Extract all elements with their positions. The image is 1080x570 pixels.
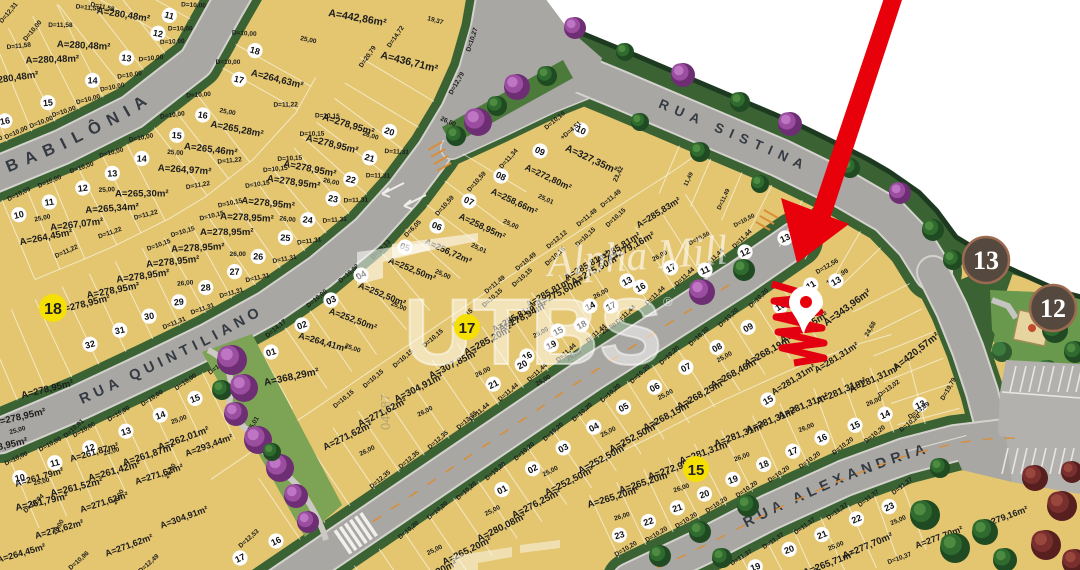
svg-text:13: 13 xyxy=(973,246,999,275)
svg-text:12: 12 xyxy=(77,183,88,194)
svg-text:14: 14 xyxy=(137,154,147,164)
svg-text:25: 25 xyxy=(280,232,291,243)
svg-text:A=280,48m²: A=280,48m² xyxy=(25,53,79,66)
svg-text:A=265,30m²: A=265,30m² xyxy=(115,189,169,200)
svg-text:D=10,00: D=10,00 xyxy=(168,26,193,33)
svg-text:11: 11 xyxy=(44,197,55,208)
svg-text:26,00: 26,00 xyxy=(230,251,247,258)
svg-text:25,00: 25,00 xyxy=(99,186,116,194)
svg-text:28: 28 xyxy=(200,282,211,293)
svg-text:D=10,00: D=10,00 xyxy=(160,38,185,46)
svg-text:D=11,22: D=11,22 xyxy=(273,101,298,108)
svg-text:D=10,00: D=10,00 xyxy=(216,59,241,66)
svg-text:29: 29 xyxy=(173,296,184,307)
svg-text:31: 31 xyxy=(114,324,126,336)
svg-text:D=10,00: D=10,00 xyxy=(232,30,257,38)
svg-text:15: 15 xyxy=(171,130,182,141)
svg-text:D=10,15: D=10,15 xyxy=(300,131,325,138)
svg-text:16: 16 xyxy=(197,109,208,120)
svg-text:16: 16 xyxy=(0,115,11,127)
svg-text:17: 17 xyxy=(459,320,476,337)
svg-text:25,00: 25,00 xyxy=(167,149,184,157)
svg-text:24: 24 xyxy=(302,214,313,225)
svg-text:D=10,15: D=10,15 xyxy=(277,155,302,163)
svg-text:23: 23 xyxy=(327,193,339,205)
svg-text:26: 26 xyxy=(253,251,263,261)
svg-text:®: ® xyxy=(663,294,673,309)
svg-text:D=11,31: D=11,31 xyxy=(366,172,391,179)
svg-text:D=11,31: D=11,31 xyxy=(344,197,369,205)
svg-text:D=11,58: D=11,58 xyxy=(48,22,73,29)
svg-text:15: 15 xyxy=(42,97,53,108)
svg-text:13: 13 xyxy=(107,168,117,178)
svg-text:12: 12 xyxy=(152,28,164,40)
svg-text:30: 30 xyxy=(143,311,154,322)
svg-text:D=11,31: D=11,31 xyxy=(384,148,409,156)
svg-text:14: 14 xyxy=(88,75,98,85)
svg-text:12: 12 xyxy=(1040,294,1066,323)
svg-text:27: 27 xyxy=(230,267,240,277)
svg-text:UTBS: UTBS xyxy=(404,279,660,384)
svg-text:04787: 04787 xyxy=(378,394,393,430)
svg-text:A=278,95m²: A=278,95m² xyxy=(200,227,254,238)
svg-text:D=10,15: D=10,15 xyxy=(315,112,340,120)
svg-text:26,00: 26,00 xyxy=(177,279,194,287)
svg-text:15: 15 xyxy=(688,462,705,479)
svg-text:18: 18 xyxy=(44,301,62,318)
svg-text:13: 13 xyxy=(121,53,132,64)
svg-text:D=10,00: D=10,00 xyxy=(181,1,206,9)
